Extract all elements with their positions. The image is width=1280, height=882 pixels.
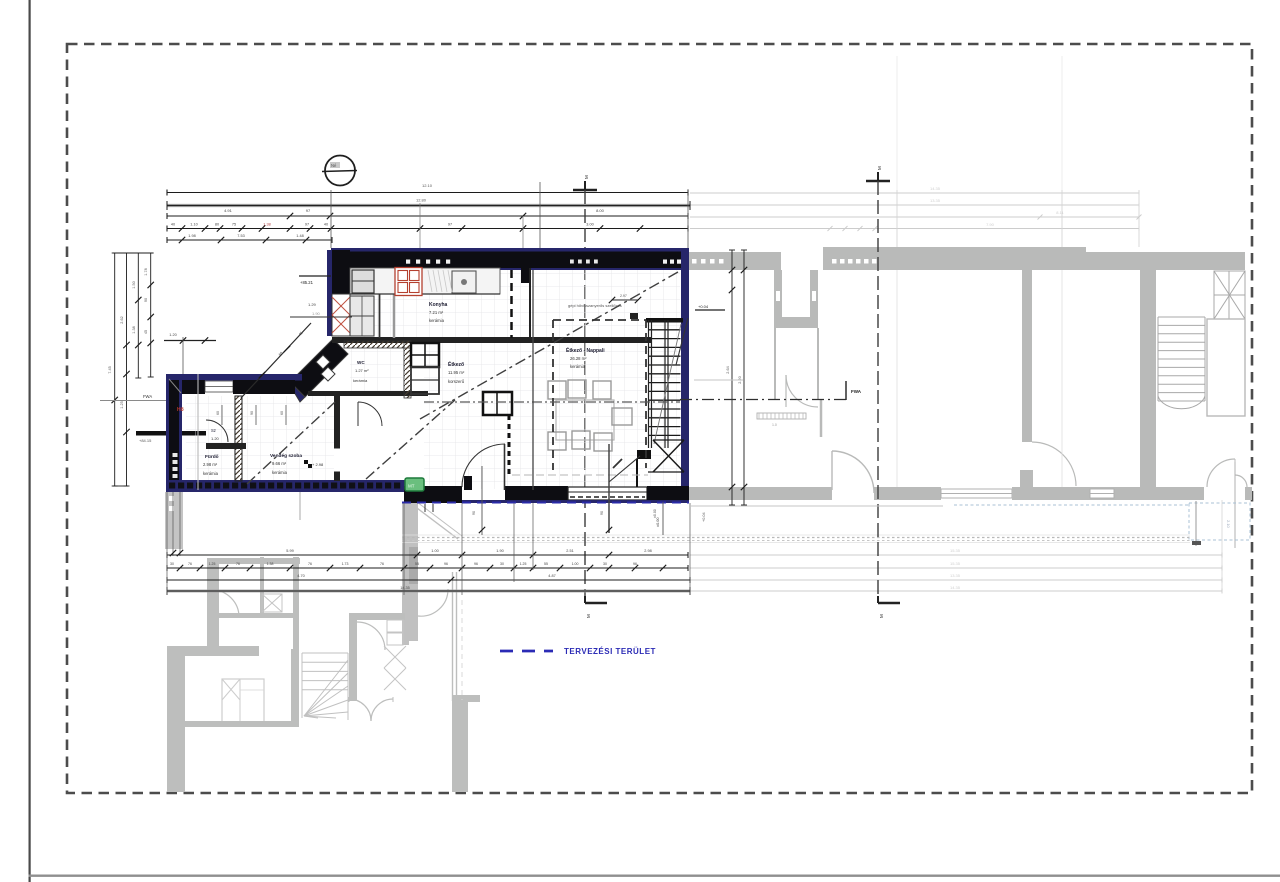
svg-text:+85.21: +85.21 [300,280,314,285]
svg-text:14.35: 14.35 [930,186,941,191]
svg-text:2.51: 2.51 [566,549,573,553]
svg-text:96: 96 [474,562,478,566]
svg-text:+0.04: +0.04 [702,512,706,522]
svg-text:60: 60 [280,411,284,415]
svg-text:4.87: 4.87 [548,574,555,578]
svg-text:90: 90 [144,298,148,302]
svg-text:12.80: 12.80 [416,198,427,203]
svg-text:1.20: 1.20 [169,333,176,337]
svg-text:40: 40 [324,223,328,227]
svg-text:30: 30 [170,562,174,566]
svg-text:1.50: 1.50 [132,281,136,288]
svg-text:90: 90 [472,511,476,515]
svg-text:2.62: 2.62 [120,316,124,323]
svg-text:Sz: Sz [211,428,216,433]
svg-text:1.0: 1.0 [772,423,777,427]
svg-text:M: M [879,614,884,618]
svg-text:1.73: 1.73 [342,562,349,566]
svg-text:M: M [586,614,591,618]
svg-text:2.98: 2.98 [644,549,651,553]
svg-text:M: M [877,166,882,170]
svg-text:gépi hővisszanyerős szellőzés: gépi hővisszanyerős szellőzés [568,303,622,308]
svg-text:97: 97 [305,223,309,227]
svg-text:14.35: 14.35 [400,586,410,590]
svg-text:1.25: 1.25 [520,562,527,566]
svg-text:8.11: 8.11 [1056,210,1064,215]
svg-text:90: 90 [600,511,604,515]
svg-text:15.35: 15.35 [950,548,961,553]
svg-text:4.91: 4.91 [224,208,233,213]
svg-text:+ 2.98: + 2.98 [312,462,324,467]
svg-text:kerámia: kerámia [272,470,288,475]
svg-text:7.21 m²: 7.21 m² [429,310,444,315]
svg-text:1.29: 1.29 [308,302,317,307]
svg-text:5.99: 5.99 [286,549,293,553]
svg-text:30: 30 [603,562,607,566]
svg-text:76: 76 [236,562,240,566]
svg-text:7.45: 7.45 [108,366,112,373]
svg-text:Fürdő: Fürdő [205,454,219,460]
svg-text:Hő: Hő [177,407,184,413]
svg-text:60: 60 [216,411,220,415]
svg-text:+0.04: +0.04 [698,304,709,309]
svg-text:15.35: 15.35 [950,561,961,566]
svg-text:1.38: 1.38 [263,223,270,227]
svg-text:13.35: 13.35 [950,573,961,578]
svg-text:1.98: 1.98 [188,234,195,238]
svg-text:7.53: 7.53 [237,234,244,238]
svg-text:9.66 m²: 9.66 m² [272,461,287,466]
svg-text:Konyha: Konyha [429,302,448,308]
svg-text:12.10: 12.10 [422,183,433,188]
svg-text:7.90: 7.90 [986,222,995,227]
svg-text:kerámia: kerámia [429,318,445,323]
svg-text:45: 45 [144,330,148,334]
svg-text:+84.15: +84.15 [139,438,152,443]
svg-text:55: 55 [415,562,419,566]
svg-text:Vendég szoba: Vendég szoba [270,453,302,459]
svg-text:97: 97 [448,223,452,227]
svg-text:76: 76 [308,562,312,566]
svg-text:75: 75 [232,223,236,227]
svg-text:FWA: FWA [143,394,152,399]
svg-text:96: 96 [633,562,637,566]
svg-text:WC: WC [357,360,365,365]
svg-text:MT: MT [408,484,415,489]
svg-text:13.35: 13.35 [930,198,941,203]
svg-text:kerámia: kerámia [570,364,586,369]
svg-text:TERVEZÉSI TERÜLET: TERVEZÉSI TERÜLET [564,647,656,656]
svg-text:97: 97 [306,208,311,213]
svg-text:1.38: 1.38 [132,326,136,333]
svg-text:2.97: 2.97 [620,294,627,298]
svg-text:1.38: 1.38 [267,562,274,566]
svg-text:55: 55 [544,562,548,566]
svg-text:30: 30 [500,562,504,566]
svg-text:1.25: 1.25 [120,401,124,408]
svg-text:14.35: 14.35 [950,585,961,590]
svg-text:Étkező - Nappali: Étkező - Nappali [566,346,605,354]
svg-text:1.48: 1.48 [296,234,303,238]
svg-text:76: 76 [188,562,192,566]
svg-text:90: 90 [250,411,254,415]
svg-text:2.98 m²: 2.98 m² [203,462,218,467]
svg-text:76: 76 [380,562,384,566]
svg-text:11.95 m²: 11.95 m² [448,370,465,375]
svg-text:Étkező: Étkező [448,360,464,368]
svg-text:kerámia: kerámia [203,471,219,476]
svg-text:96: 96 [444,562,448,566]
svg-text:1.10: 1.10 [190,223,197,227]
svg-text:M: M [584,175,589,179]
svg-text:8.00: 8.00 [596,208,605,213]
svg-text:±0.00: ±0.00 [653,509,657,518]
svg-text:1.78: 1.78 [144,268,148,275]
svg-text:26.28 m²: 26.28 m² [570,356,587,361]
svg-text:1.27 m²: 1.27 m² [355,368,369,373]
svg-text:3.00: 3.00 [586,223,593,227]
svg-text:1.25: 1.25 [209,562,216,566]
svg-text:2.10: 2.10 [1226,520,1231,529]
svg-text:1.90: 1.90 [312,311,321,316]
svg-text:Né: Né [331,163,337,168]
svg-text:4.70: 4.70 [297,574,304,578]
svg-text:FWA: FWA [851,389,862,394]
svg-text:korszerű: korszerű [448,379,465,384]
svg-text:40: 40 [171,223,175,227]
svg-text:1.90: 1.90 [496,549,503,553]
svg-text:1.00: 1.00 [572,562,579,566]
svg-text:80: 80 [215,223,219,227]
svg-text:1.00: 1.00 [431,549,438,553]
svg-text:kerámia: kerámia [353,378,368,383]
svg-text:1.20: 1.20 [211,436,220,441]
svg-text:2.64: 2.64 [726,366,730,373]
